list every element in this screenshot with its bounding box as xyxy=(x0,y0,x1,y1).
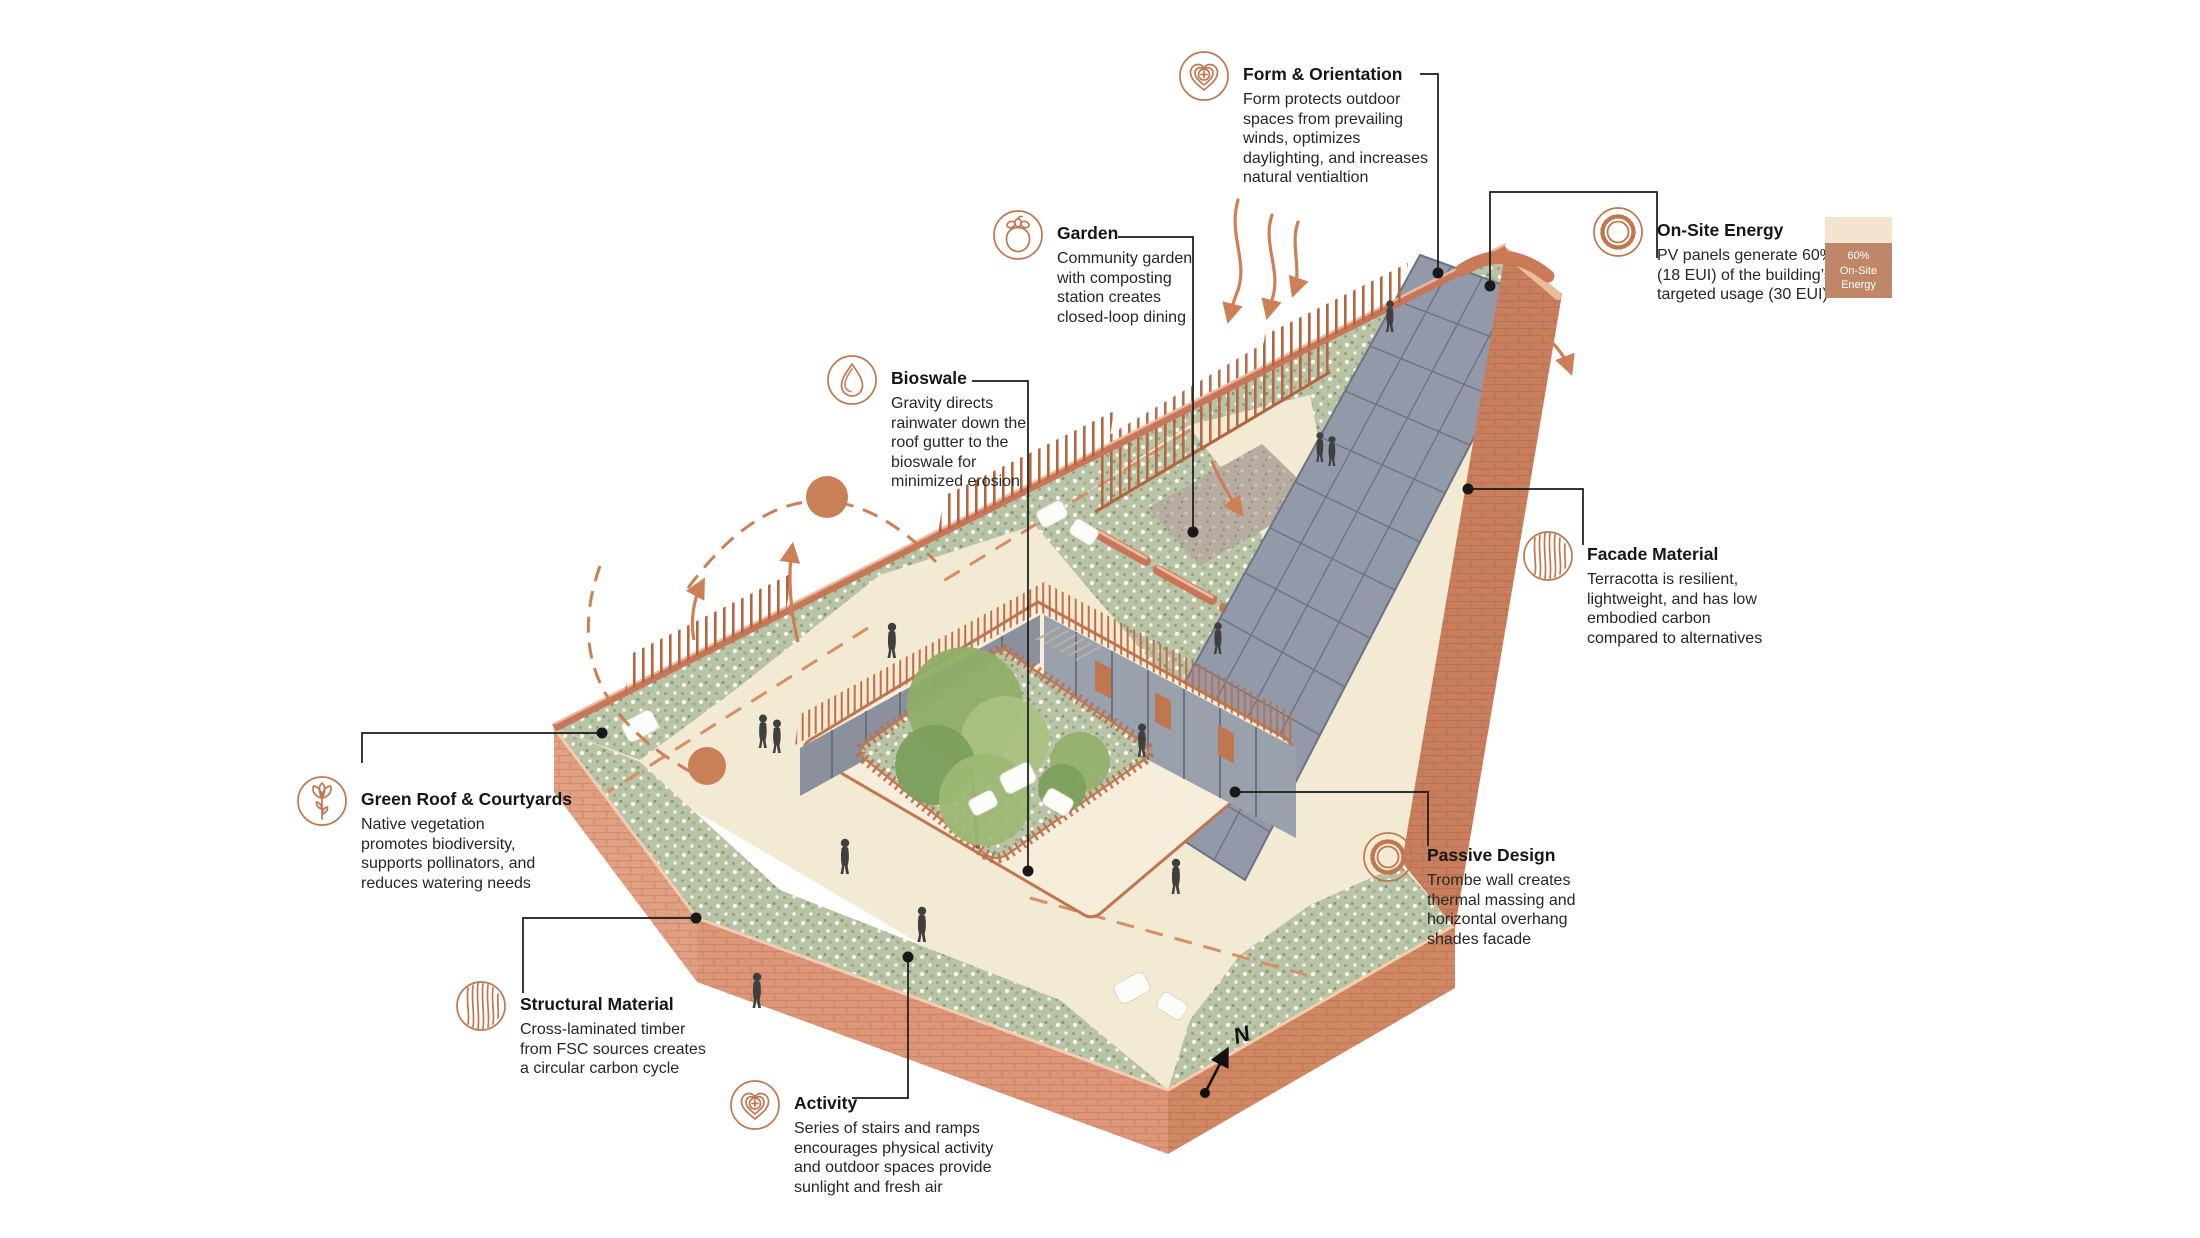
callout-body: Native vegetation promotes biodiversity,… xyxy=(361,815,571,893)
callout-title: Passive Design xyxy=(1427,845,1607,866)
wood-grain-icon xyxy=(1521,529,1575,583)
callout-body: Cross-laminated timber from FSC sources … xyxy=(520,1020,720,1079)
callout-form-orientation: Form & Orientation Form protects outdoor… xyxy=(1177,49,1458,188)
callout-bioswale: Bioswale Gravity directs rainwater down … xyxy=(825,353,1041,492)
callout-activity: Activity Series of stairs and ramps enco… xyxy=(728,1078,1024,1197)
callout-title: Structural Material xyxy=(520,994,720,1015)
callout-body: Series of stairs and ramps encourages ph… xyxy=(794,1119,1024,1197)
building-illustration: N xyxy=(0,0,2200,1238)
energy-legend-onsite-segment: 60% On-Site Energy xyxy=(1825,243,1892,298)
wellness-heart-icon xyxy=(728,1078,782,1132)
energy-legend-label-line1: On-Site xyxy=(1825,264,1892,279)
callout-body: Gravity directs rainwater down the roof … xyxy=(891,394,1041,492)
diagram-canvas: N Form & Orientation Form protects outdo… xyxy=(0,0,2200,1238)
callout-facade-material: Facade Material Terracotta is resilient,… xyxy=(1521,529,1777,648)
callout-title: Garden xyxy=(1057,223,1222,244)
flower-icon xyxy=(295,774,349,828)
callout-garden: Garden Community garden with composting … xyxy=(991,208,1222,327)
callout-body: Form protects outdoor spaces from prevai… xyxy=(1243,90,1458,188)
sun-dot xyxy=(688,747,726,785)
wellness-heart-icon xyxy=(1177,49,1231,103)
callout-title: Facade Material xyxy=(1587,544,1777,565)
callout-body: Community garden with composting station… xyxy=(1057,249,1222,327)
callout-title: Green Roof & Courtyards xyxy=(361,789,572,810)
callout-title: Form & Orientation xyxy=(1243,64,1458,85)
water-drop-icon xyxy=(825,353,879,407)
callout-title: Activity xyxy=(794,1093,1024,1114)
energy-legend-bar: 60% On-Site Energy xyxy=(1825,217,1892,298)
callout-on-site-energy: On-Site Energy PV panels generate 60% (1… xyxy=(1591,205,1857,305)
sun-icon xyxy=(1361,830,1415,884)
callout-body: Trombe wall creates thermal massing and … xyxy=(1427,871,1607,949)
callout-title: Bioswale xyxy=(891,368,1041,389)
callout-structural-material: Structural Material Cross-laminated timb… xyxy=(454,979,720,1079)
callout-passive-design: Passive Design Trombe wall creates therm… xyxy=(1361,830,1607,949)
energy-legend-percent: 60% xyxy=(1825,249,1892,264)
callout-body: Terracotta is resilient, lightweight, an… xyxy=(1587,570,1777,648)
fruit-icon xyxy=(991,208,1045,262)
wood-grain-icon xyxy=(454,979,508,1033)
energy-legend-label-line2: Energy xyxy=(1825,278,1892,293)
callout-green-roof: Green Roof & Courtyards Native vegetatio… xyxy=(295,774,572,893)
energy-legend-remainder-segment xyxy=(1825,217,1892,243)
sun-icon xyxy=(1591,205,1645,259)
